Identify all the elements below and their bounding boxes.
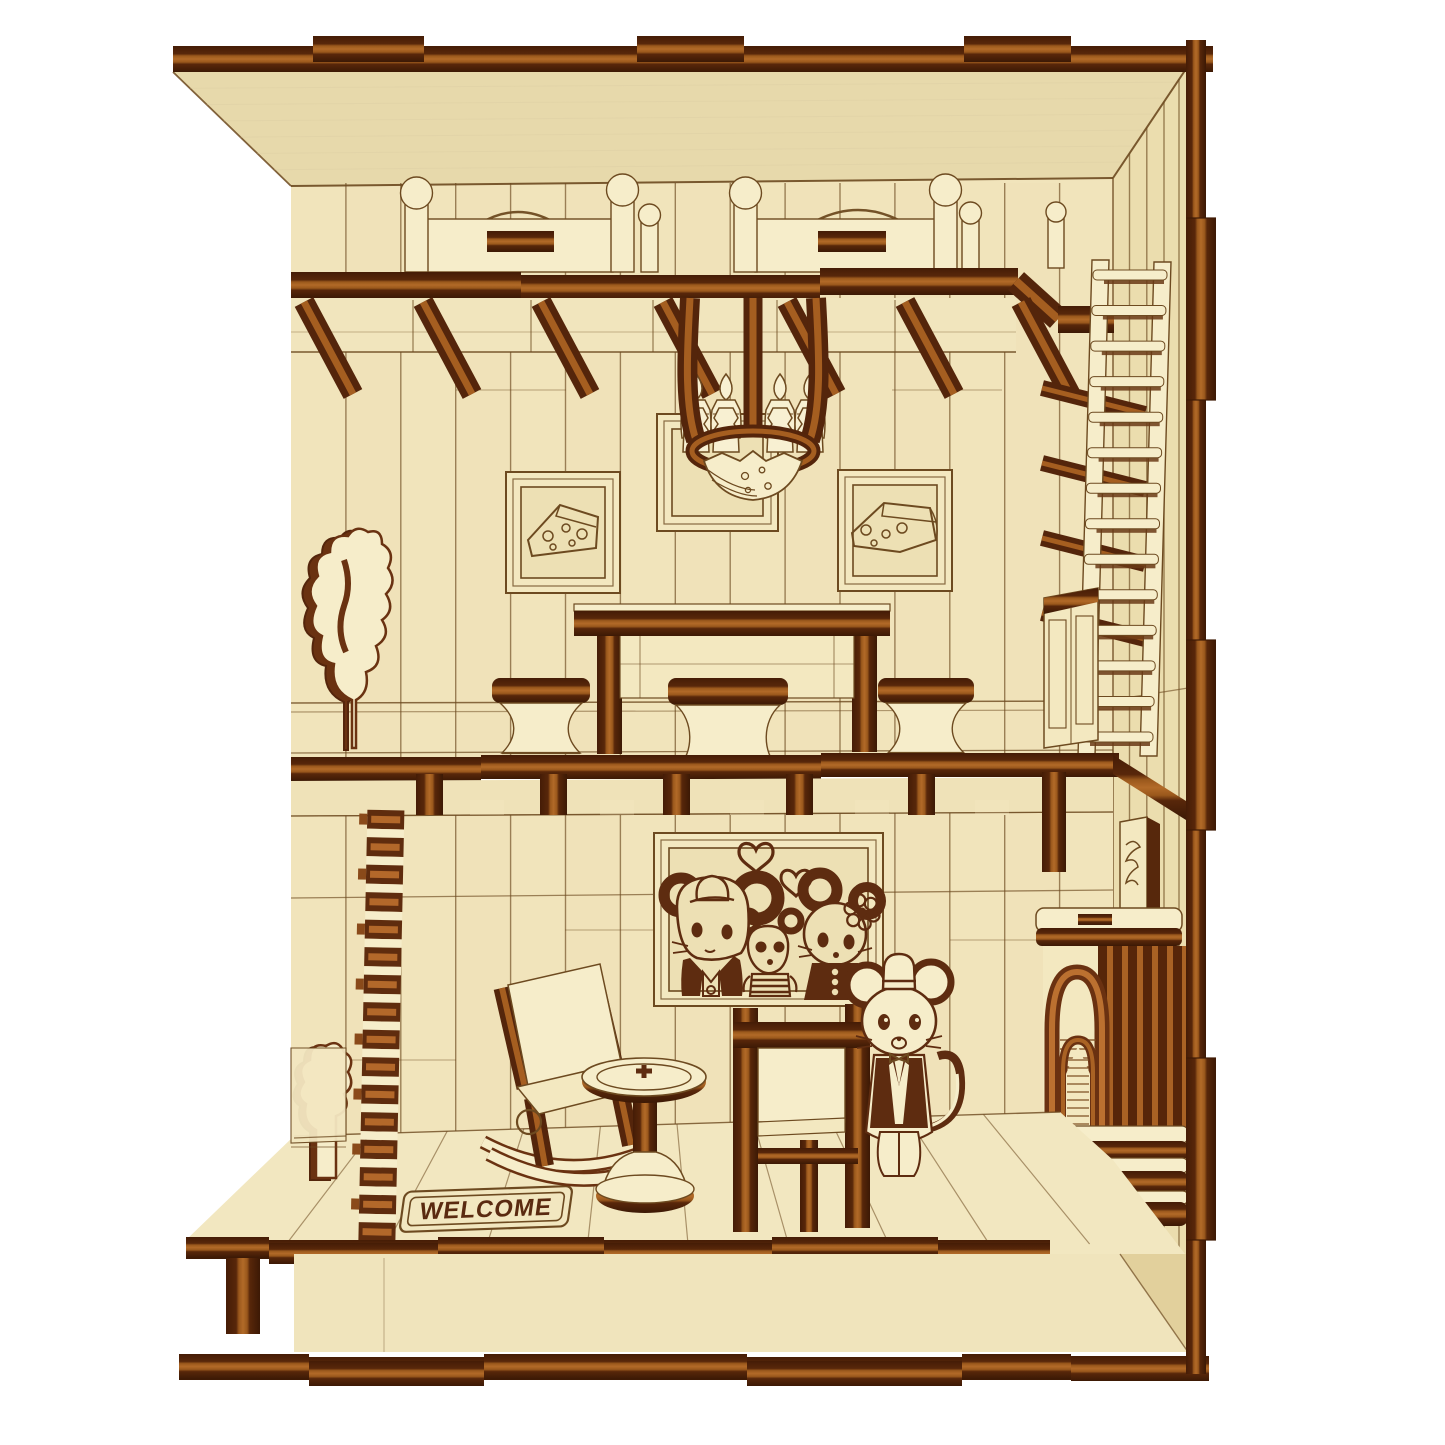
svg-text:WELCOME: WELCOME — [418, 1194, 554, 1226]
